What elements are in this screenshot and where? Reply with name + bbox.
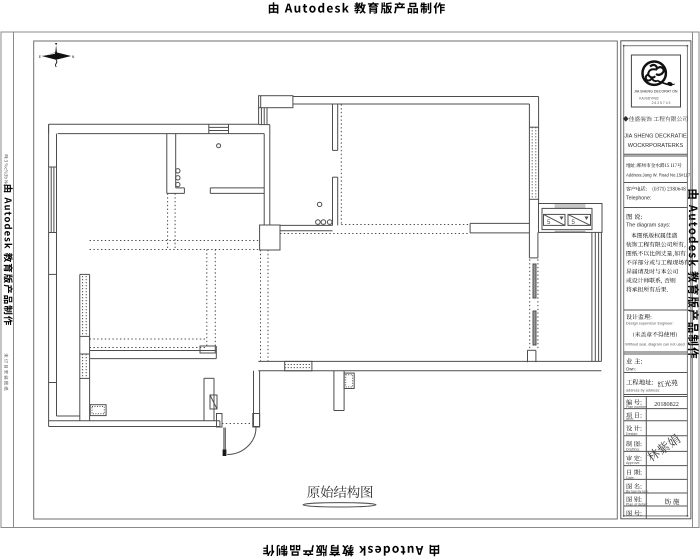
svg-text:JIA SHENG DECORAT ON: JIA SHENG DECORAT ON (634, 90, 678, 94)
svg-text:By low by low:: By low by low: (626, 490, 649, 494)
svg-text:Without seal, diagram can not: Without seal, diagram can not used (625, 343, 685, 347)
svg-text:Own:: Own: (626, 367, 636, 372)
svg-text:20180822: 20180822 (654, 401, 679, 408)
svg-text:Drafting:: Drafting: (626, 448, 640, 452)
svg-text:Design:: Design: (626, 432, 638, 436)
svg-text:JIA SHENG DECKRATIE: JIA SHENG DECKRATIE (624, 134, 687, 140)
svg-text:Telephone:: Telephone: (626, 196, 651, 202)
svg-text:Approve:: Approve: (626, 461, 640, 465)
svg-text:Item:: Item: (626, 417, 634, 421)
svg-text:N: N (72, 55, 75, 59)
svg-text:Plan number:: Plan number: (626, 405, 647, 409)
svg-text:2 6 2 5 7 4 3: 2 6 2 5 7 4 3 (652, 101, 671, 105)
svg-text:The diagram says:: The diagram says: (626, 223, 670, 229)
svg-text:Date:: Date: (626, 476, 635, 480)
svg-text:Design supervisor Engineer:: Design supervisor Engineer: (626, 322, 674, 326)
svg-text:Plan of detail:: Plan of detail: (626, 503, 648, 507)
svg-text:Address:Jang W. Road No.15#117: Address:Jang W. Road No.15#117 (626, 173, 691, 178)
svg-text:WOCKRPORATERKS: WOCKRPORATERKS (628, 143, 684, 149)
svg-text:address by address:: address by address: (626, 389, 660, 393)
